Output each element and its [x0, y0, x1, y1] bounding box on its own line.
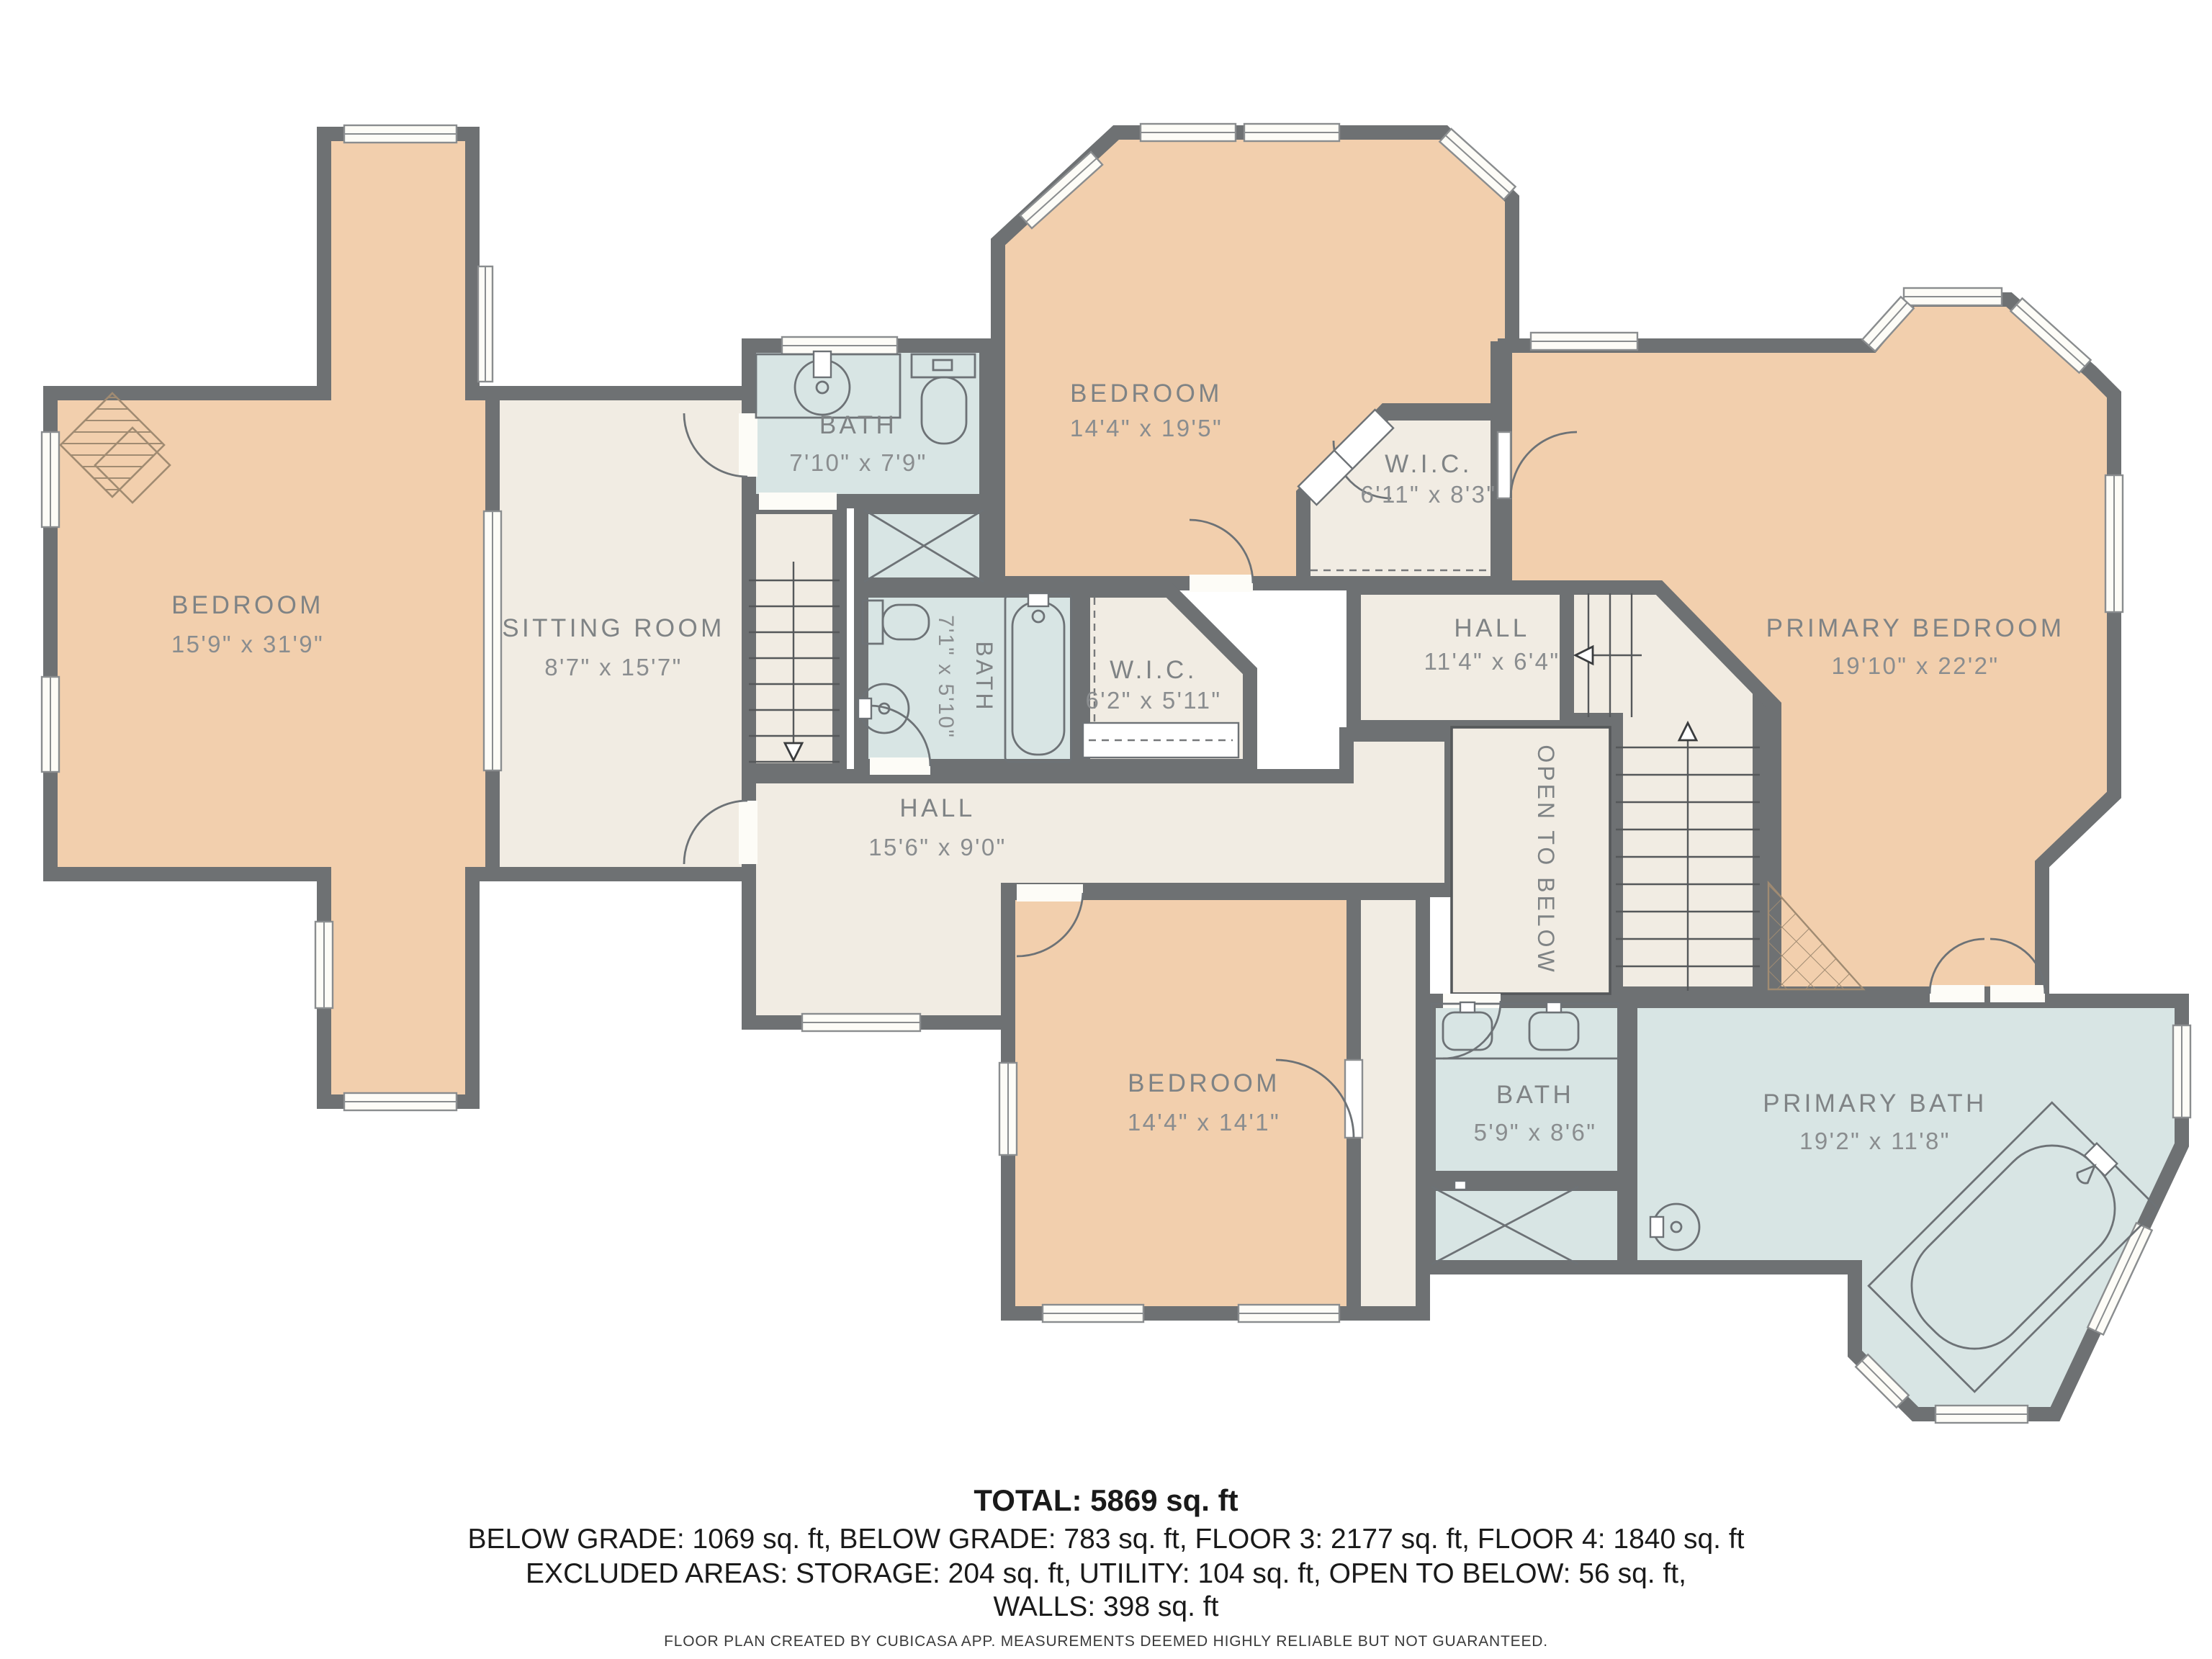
window: [42, 432, 59, 527]
label-primary-bedroom-dims: 19'10" x 22'2": [1832, 652, 2000, 679]
room-open-to-below: [1452, 727, 1610, 994]
window: [1141, 124, 1236, 141]
window: [2105, 475, 2123, 612]
label-sitting-name: SITTING ROOM: [502, 614, 724, 642]
window: [1904, 288, 2002, 305]
footer-walls-line: WALLS: 398 sq. ft: [994, 1591, 1219, 1622]
window: [802, 1014, 920, 1031]
label-bath-mid-dims: 7'1" x 5'10": [934, 615, 958, 739]
window: [484, 511, 501, 770]
label-bath-top-name: BATH: [819, 411, 897, 439]
window: [42, 677, 59, 772]
label-primary-bedroom-name: PRIMARY BEDROOM: [1766, 614, 2065, 642]
label-wic-mid-name: W.I.C.: [1110, 656, 1197, 684]
label-bath-bottom-dims: 5'9" x 8'6": [1474, 1119, 1597, 1146]
room-corridor-bottom: [1354, 893, 1423, 1313]
door-leaf: [1498, 432, 1511, 498]
window: [344, 125, 457, 143]
floor-plan-canvas: BEDROOM 15'9" x 31'9" SITTING ROOM 8'7" …: [0, 0, 2212, 1659]
label-wic-mid-dims: 6'2" x 5'11": [1086, 687, 1222, 714]
window: [344, 1093, 457, 1110]
label-primary-bath-name: PRIMARY BATH: [1763, 1089, 1987, 1118]
label-wic-top-name: W.I.C.: [1385, 450, 1473, 478]
footer-disclaimer: FLOOR PLAN CREATED BY CUBICASA APP. MEAS…: [664, 1633, 1548, 1650]
label-primary-bath-dims: 19'2" x 11'8": [1799, 1128, 1951, 1154]
room-primary-bath: [1630, 1001, 2182, 1414]
window: [2173, 1025, 2190, 1118]
window: [1935, 1406, 2028, 1423]
label-bedroom-top-name: BEDROOM: [1070, 379, 1223, 408]
footer-total: TOTAL: 5869 sq. ft: [974, 1483, 1238, 1517]
rooms-layer: [50, 132, 2182, 1414]
label-bedroom-left-name: BEDROOM: [171, 591, 324, 619]
label-hall-top-name: HALL: [1454, 614, 1529, 642]
label-bath-bottom-name: BATH: [1496, 1081, 1574, 1109]
room-bedroom-bottom: [1008, 893, 1354, 1313]
label-bedroom-bottom-name: BEDROOM: [1128, 1069, 1280, 1097]
label-hall-center-dims: 15'6" x 9'0": [868, 834, 1006, 860]
label-hall-center-name: HALL: [899, 794, 975, 822]
footer-summary: TOTAL: 5869 sq. ft BELOW GRADE: 1069 sq.…: [467, 1483, 1744, 1650]
window: [1531, 333, 1637, 350]
window: [999, 1063, 1017, 1155]
room-shower-bottom: [1429, 1184, 1624, 1267]
label-hall-top-dims: 11'4" x 6'4": [1424, 648, 1560, 675]
label-bath-top-dims: 7'10" x 7'9": [789, 449, 927, 476]
window: [1238, 1305, 1339, 1322]
window: [478, 266, 493, 382]
window: [1244, 124, 1339, 141]
window: [782, 337, 897, 354]
footer-excluded-line: EXCLUDED AREAS: STORAGE: 204 sq. ft, UTI…: [526, 1558, 1686, 1589]
label-bedroom-left-dims: 15'9" x 31'9": [171, 631, 324, 657]
window: [315, 922, 333, 1008]
label-open-to-below: OPEN TO BELOW: [1533, 745, 1559, 974]
label-sitting-dims: 8'7" x 15'7": [544, 654, 682, 680]
label-bedroom-bottom-dims: 14'4" x 14'1": [1128, 1109, 1280, 1136]
label-wic-top-dims: 6'11" x 8'3": [1361, 481, 1497, 508]
label-bedroom-top-dims: 14'4" x 19'5": [1070, 415, 1223, 441]
footer-areas-line: BELOW GRADE: 1069 sq. ft, BELOW GRADE: 7…: [467, 1524, 1744, 1555]
window: [1043, 1305, 1143, 1322]
label-bath-mid-name: BATH: [971, 642, 997, 713]
